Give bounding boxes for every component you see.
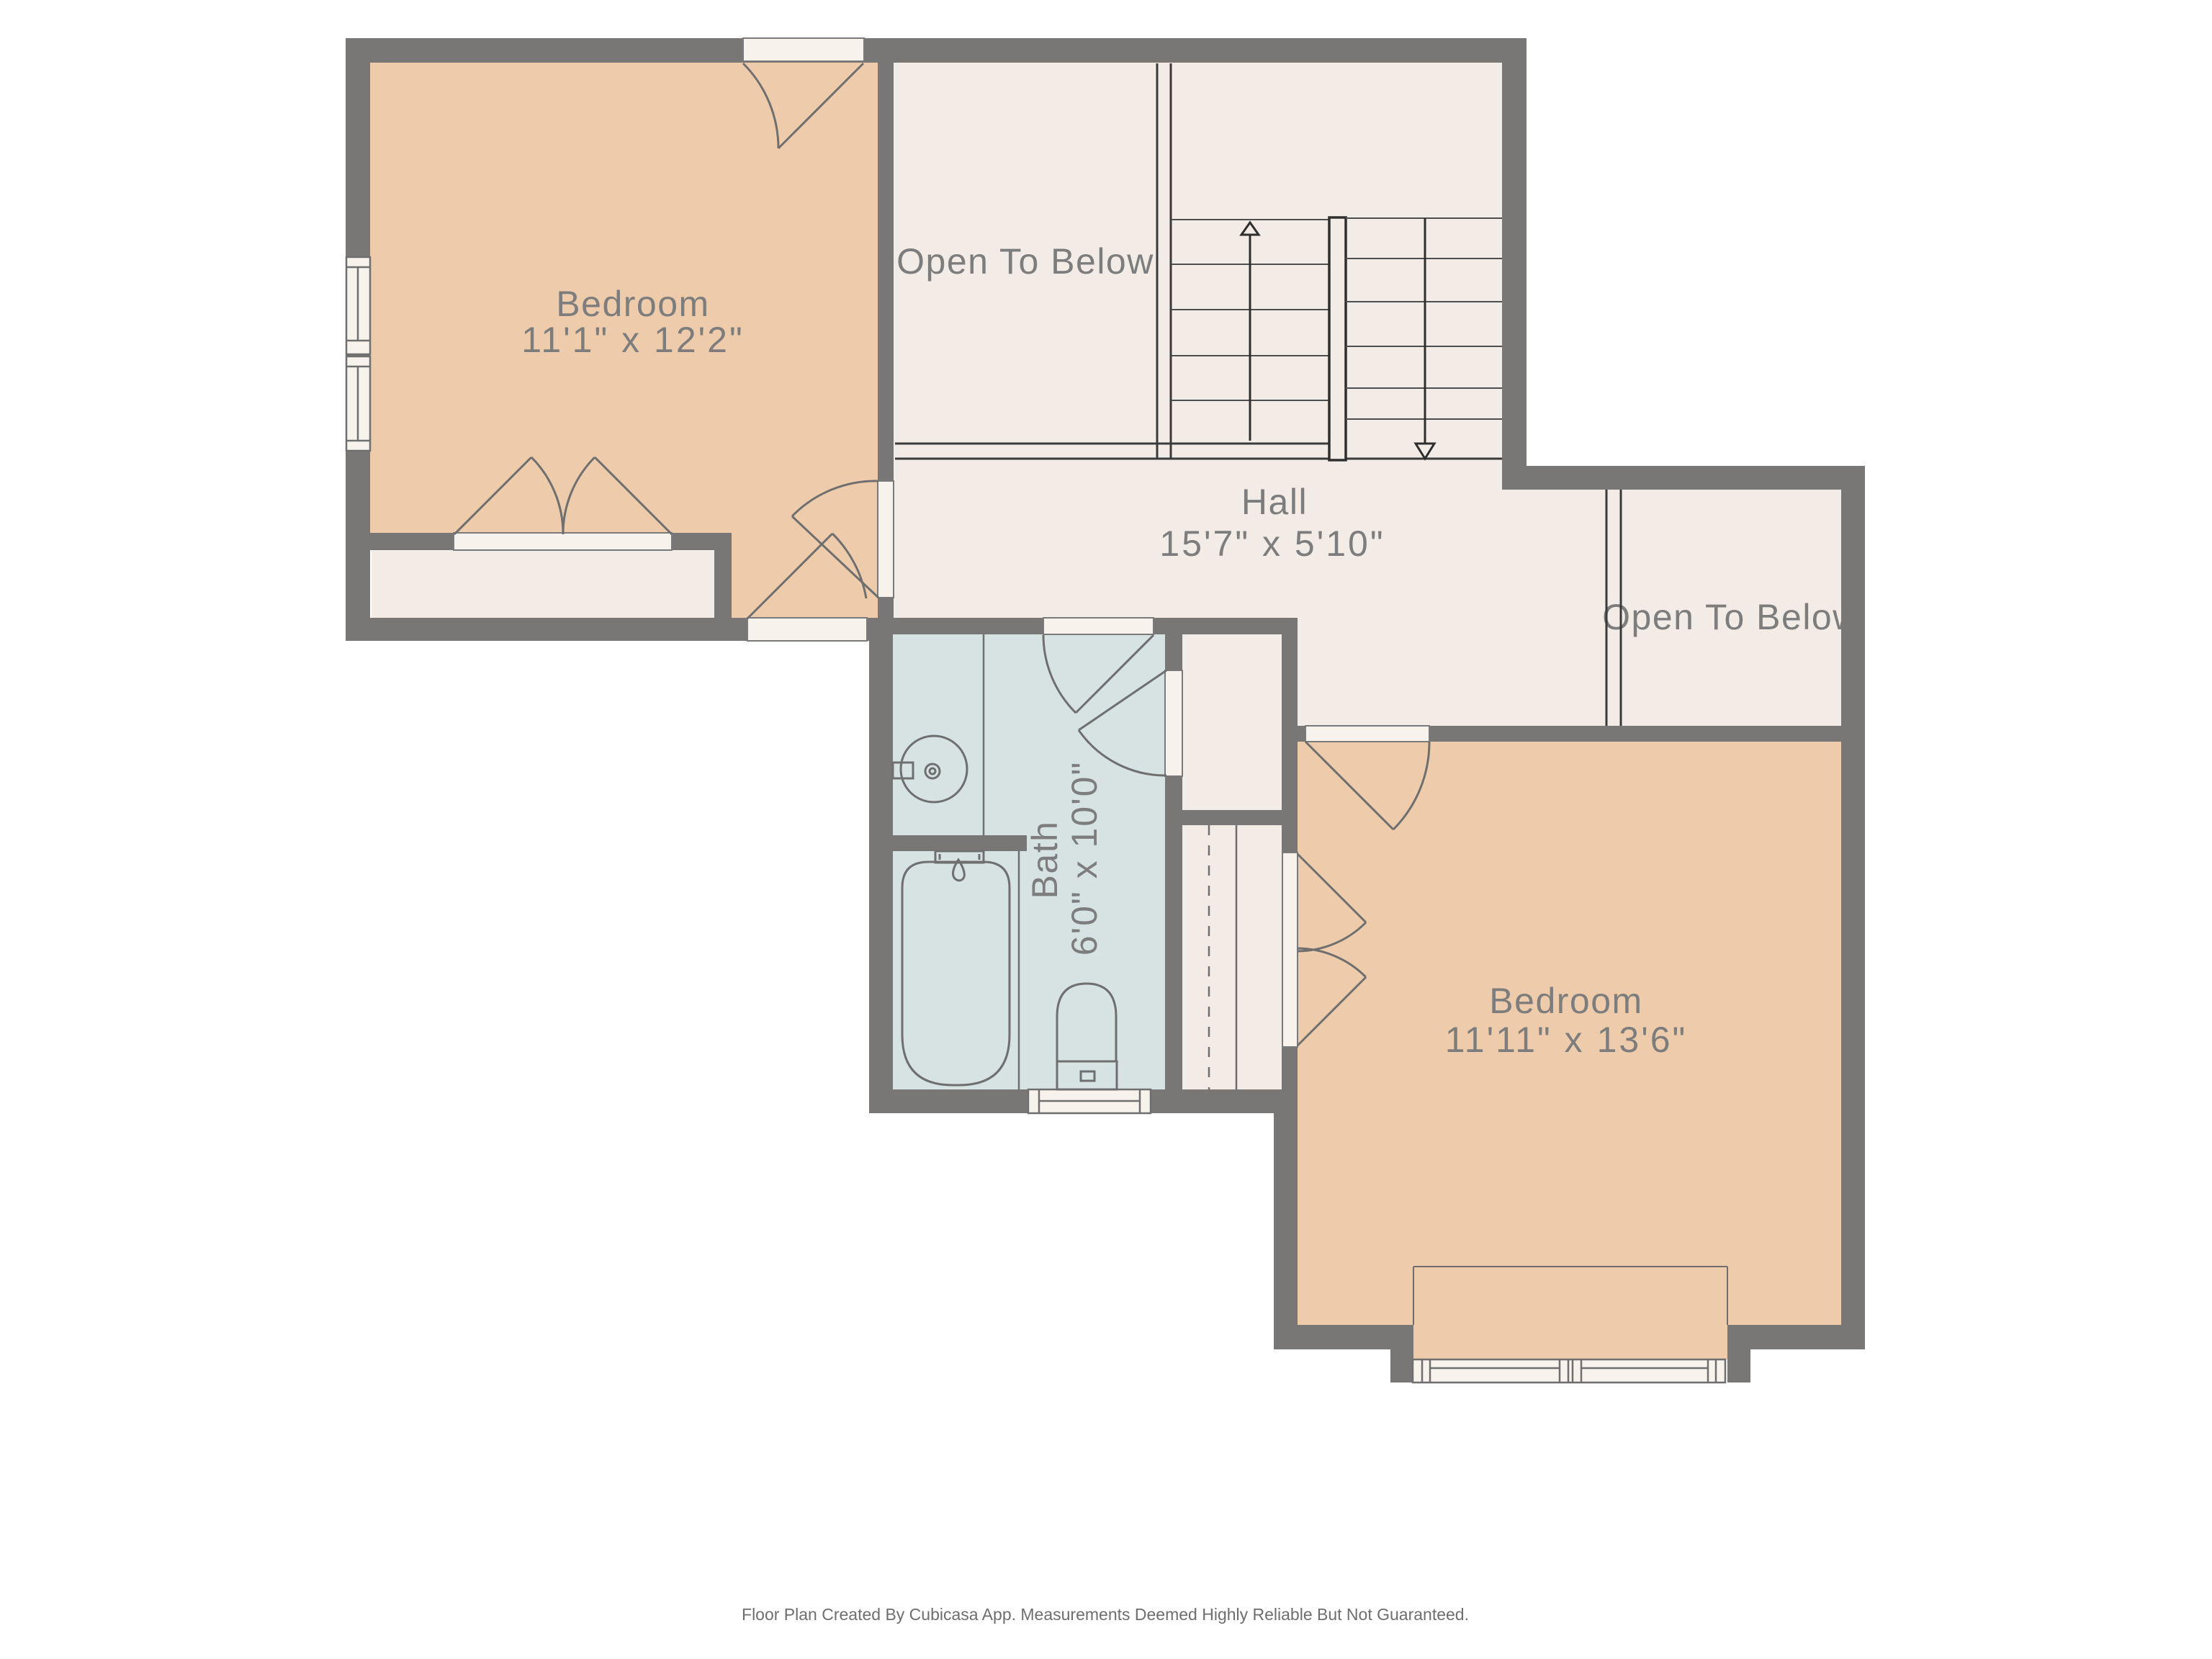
svg-text:Open To Below: Open To Below bbox=[1602, 597, 1860, 637]
svg-text:Hall: Hall bbox=[1241, 482, 1308, 522]
svg-text:Floor Plan Created By Cubicasa: Floor Plan Created By Cubicasa App. Meas… bbox=[742, 1605, 1469, 1624]
svg-text:Bedroom: Bedroom bbox=[1489, 981, 1642, 1021]
svg-text:11'1" x 12'2": 11'1" x 12'2" bbox=[521, 320, 745, 360]
svg-text:Bedroom: Bedroom bbox=[556, 284, 709, 324]
svg-text:11'11" x 13'6": 11'11" x 13'6" bbox=[1445, 1020, 1688, 1060]
svg-text:Open To Below: Open To Below bbox=[896, 241, 1154, 282]
svg-text:6'0" x 10'0": 6'0" x 10'0" bbox=[1064, 761, 1105, 956]
svg-text:Bath: Bath bbox=[1025, 821, 1065, 899]
svg-text:15'7" x 5'10": 15'7" x 5'10" bbox=[1159, 523, 1385, 564]
